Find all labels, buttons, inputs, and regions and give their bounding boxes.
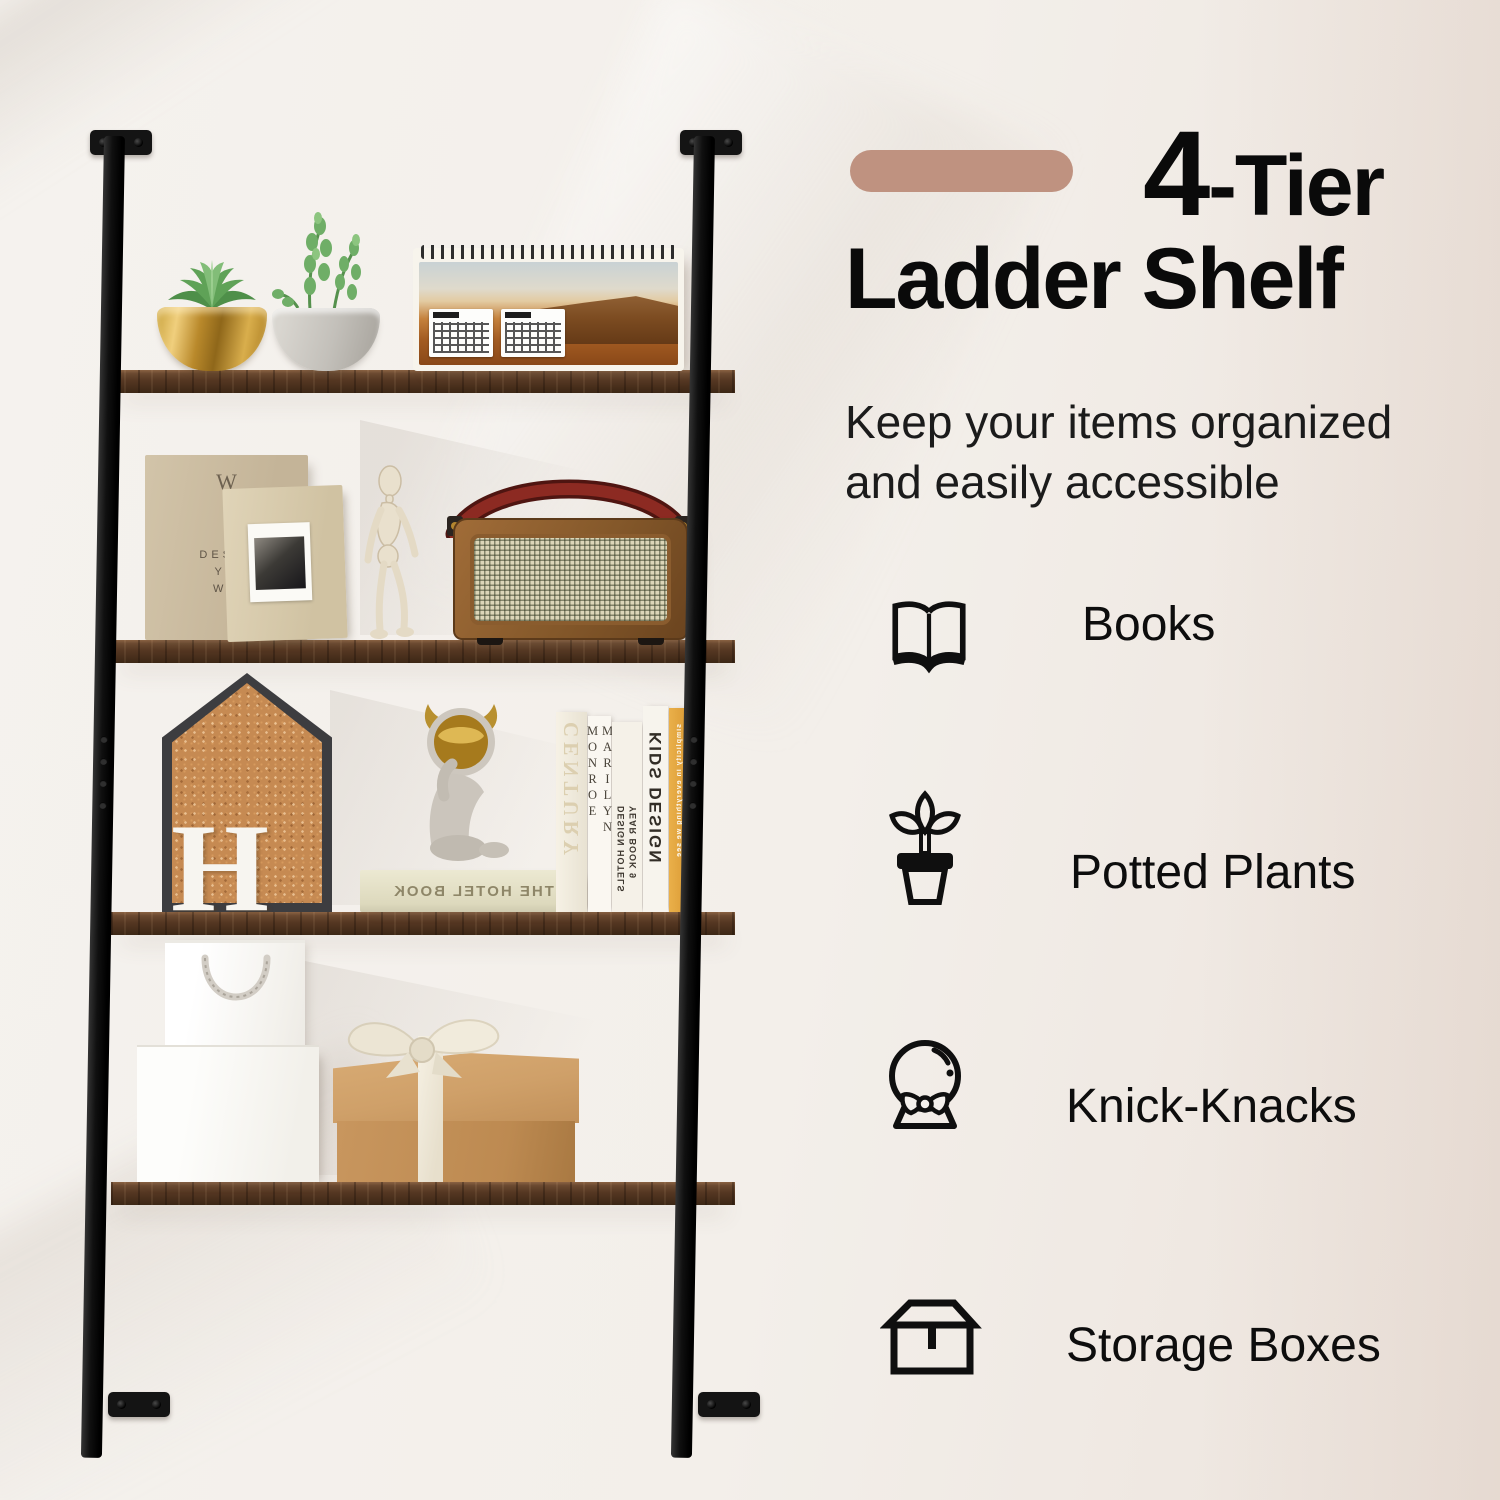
feature-label-storage-boxes: Storage Boxes bbox=[1066, 1322, 1381, 1370]
white-gift-box bbox=[137, 1045, 319, 1182]
leaning-book bbox=[222, 485, 347, 642]
storage-box-icon bbox=[880, 1296, 982, 1378]
book-spine: KIDS DESIGN bbox=[643, 706, 668, 912]
ladder-rail-left bbox=[81, 136, 125, 1458]
gift-bow bbox=[336, 1008, 512, 1078]
book-spine: CENTURY bbox=[556, 712, 587, 912]
shelf-photo: W DESIG YO WO bbox=[0, 0, 800, 1500]
feature-label-potted-plants: Potted Plants bbox=[1070, 849, 1356, 897]
bag-rope-handle bbox=[195, 952, 277, 1026]
open-book-icon bbox=[884, 598, 974, 678]
title-number: 4 bbox=[1143, 113, 1208, 234]
snow-globe-icon bbox=[882, 1036, 968, 1130]
page-title-line2: Ladder Shelf bbox=[845, 236, 1342, 322]
book-row: CENTURY MARILYN MONROE DESIGN HOTELSYEAR… bbox=[556, 706, 690, 912]
accent-pill bbox=[850, 150, 1073, 192]
book-spine: DESIGN HOTELSYEAR BOOK 9 bbox=[612, 722, 642, 912]
calendar-spiral bbox=[421, 245, 676, 259]
flat-book-title: THE HOTEL BOOK bbox=[392, 883, 554, 900]
flat-book: THE HOTEL BOOK bbox=[360, 870, 585, 912]
radio-grille bbox=[470, 534, 671, 625]
radio-foot bbox=[638, 638, 664, 645]
decor-letter: H bbox=[178, 816, 262, 912]
subtitle-line2: and easily accessible bbox=[845, 456, 1280, 508]
book-spine: MARILYN MONROE bbox=[588, 716, 611, 912]
wall-bracket-bottom-left bbox=[108, 1392, 170, 1417]
subtitle-line1: Keep your items organized bbox=[845, 396, 1392, 448]
feature-label-knick-knacks: Knick-Knacks bbox=[1066, 1083, 1357, 1131]
wall-bracket-bottom-right bbox=[698, 1392, 760, 1417]
desk-calendar bbox=[413, 248, 684, 371]
vintage-radio bbox=[453, 518, 688, 640]
feature-label-books: Books bbox=[1082, 601, 1215, 649]
product-infographic: W DESIG YO WO bbox=[0, 0, 1500, 1500]
shelf-board-4 bbox=[111, 1182, 735, 1205]
kraft-box-body bbox=[337, 1121, 575, 1182]
subtitle: Keep your items organized and easily acc… bbox=[845, 392, 1392, 512]
wooden-mannequin bbox=[358, 464, 434, 642]
potted-plant-icon bbox=[884, 790, 966, 908]
page-title-line1: 4-Tier bbox=[1143, 113, 1383, 234]
trailing-succulent bbox=[268, 210, 386, 314]
shelf-board-1 bbox=[111, 370, 735, 393]
calendar-grid bbox=[429, 309, 493, 357]
book-photo-label bbox=[248, 522, 313, 602]
radio-foot bbox=[477, 638, 503, 645]
title-suffix: -Tier bbox=[1208, 143, 1383, 229]
horned-figurine bbox=[398, 696, 524, 874]
succulent-rosette bbox=[150, 256, 274, 314]
calendar-grid bbox=[501, 309, 565, 357]
gold-plant-pot bbox=[157, 307, 267, 371]
calendar-photo bbox=[419, 262, 678, 365]
gray-plant-pot bbox=[272, 308, 380, 371]
